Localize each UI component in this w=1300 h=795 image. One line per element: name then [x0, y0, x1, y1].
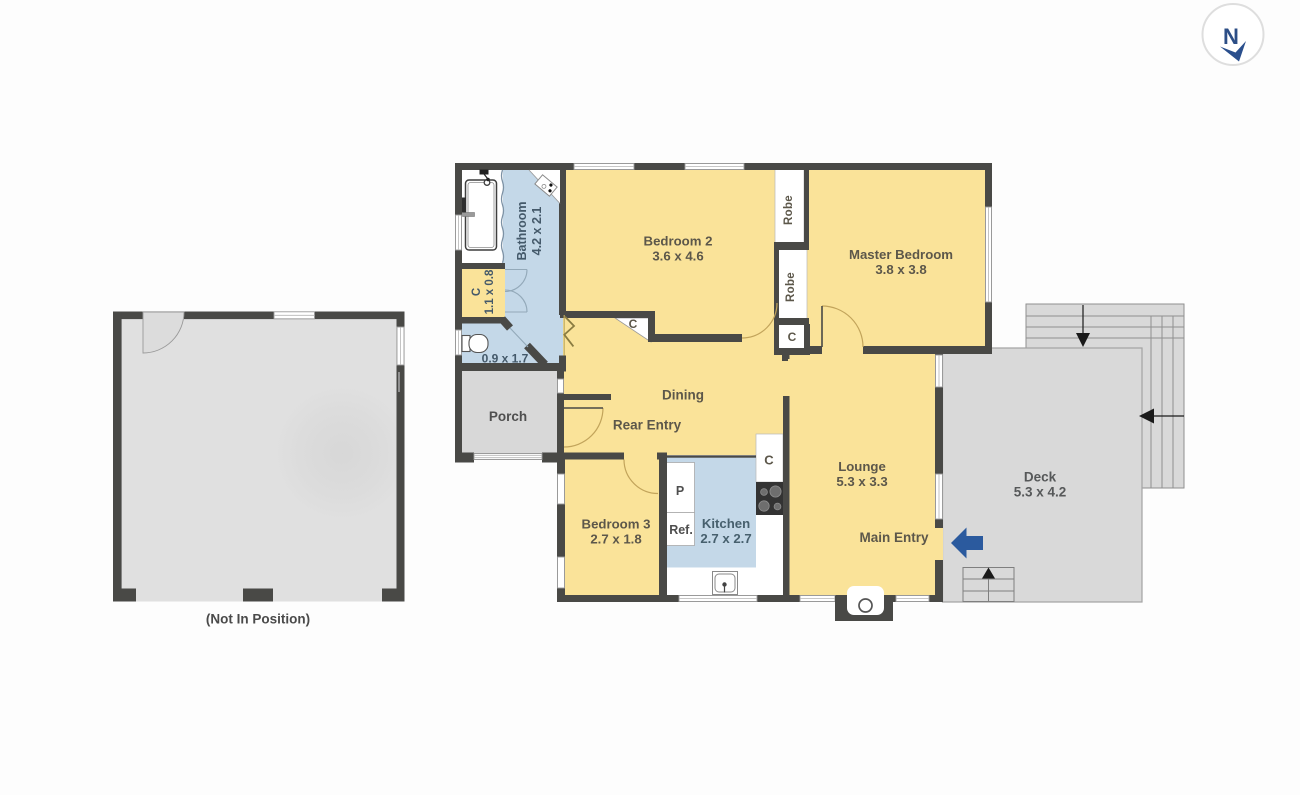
svg-text:Robe: Robe: [785, 272, 797, 302]
svg-text:Bathroom: Bathroom: [515, 201, 529, 260]
svg-text:Kitchen: Kitchen: [702, 516, 750, 531]
svg-text:3.8 x 3.8: 3.8 x 3.8: [875, 262, 926, 277]
svg-text:Bedroom 2: Bedroom 2: [644, 234, 713, 249]
svg-text:3.6 x 4.6: 3.6 x 4.6: [652, 249, 703, 264]
svg-text:N: N: [1223, 24, 1239, 49]
svg-text:1.1 x 0.8: 1.1 x 0.8: [484, 269, 496, 314]
svg-text:(Not In Position): (Not In Position): [206, 612, 310, 627]
svg-text:Ref.: Ref.: [669, 523, 693, 537]
svg-text:Lounge: Lounge: [838, 459, 886, 474]
svg-text:C: C: [764, 453, 774, 468]
svg-text:C: C: [471, 288, 483, 296]
svg-text:Master Bedroom: Master Bedroom: [849, 247, 953, 262]
svg-text:Dining: Dining: [662, 388, 704, 403]
svg-text:0.9 x 1.7: 0.9 x 1.7: [482, 352, 529, 366]
svg-text:Main Entry: Main Entry: [859, 530, 929, 545]
svg-text:Bedroom 3: Bedroom 3: [582, 517, 651, 532]
svg-text:5.3 x 3.3: 5.3 x 3.3: [836, 474, 887, 489]
svg-text:Porch: Porch: [489, 409, 527, 424]
svg-text:4.2 x 2.1: 4.2 x 2.1: [530, 207, 544, 256]
svg-text:5.3 x 4.2: 5.3 x 4.2: [1014, 485, 1067, 500]
svg-text:2.7 x 1.8: 2.7 x 1.8: [590, 532, 641, 547]
svg-text:P: P: [676, 484, 684, 498]
svg-text:C: C: [788, 330, 797, 344]
svg-text:Rear Entry: Rear Entry: [613, 418, 682, 433]
svg-text:Deck: Deck: [1024, 470, 1057, 485]
svg-text:C: C: [629, 317, 638, 331]
svg-text:Robe: Robe: [783, 195, 795, 225]
svg-text:2.7 x 2.7: 2.7 x 2.7: [700, 531, 751, 546]
